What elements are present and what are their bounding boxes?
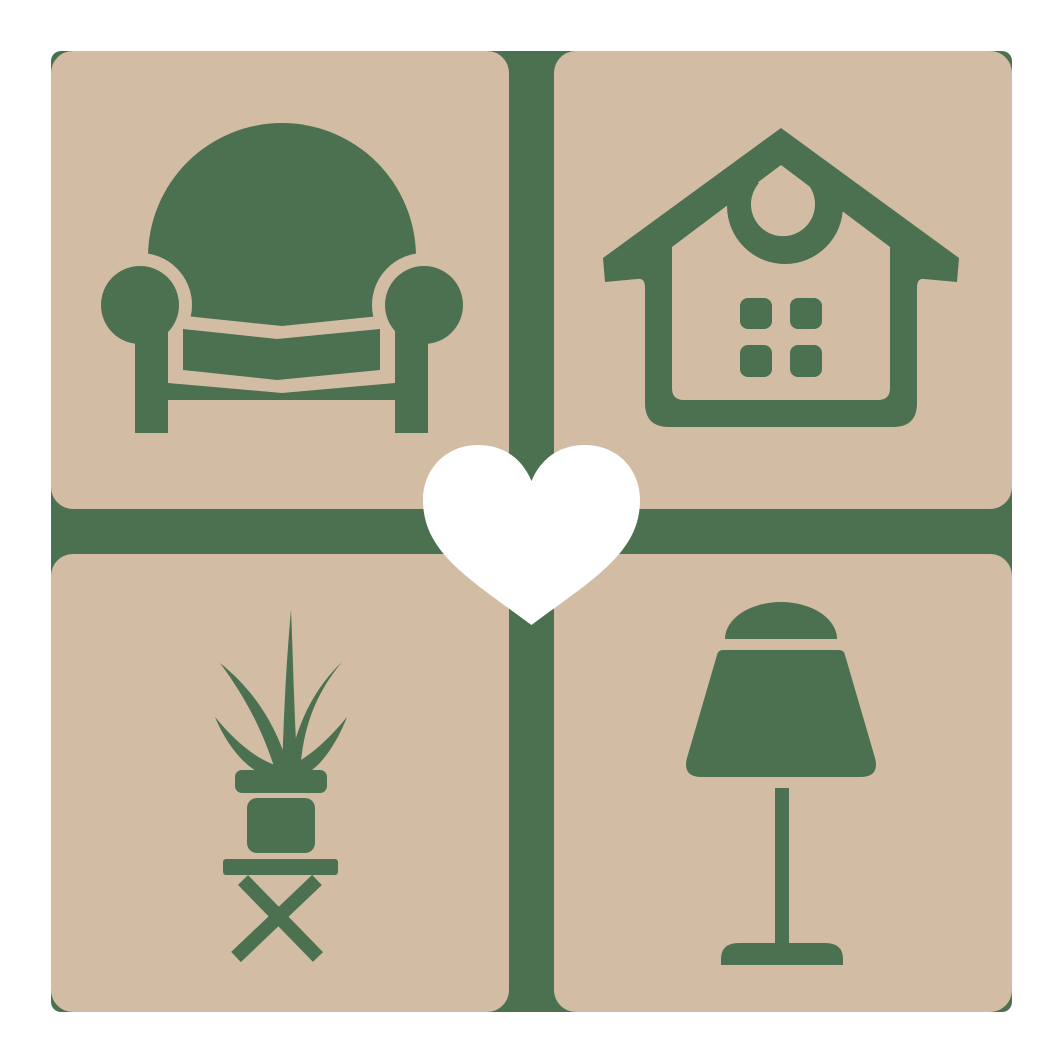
pot-body — [247, 798, 315, 853]
window-pane-top-left — [740, 298, 772, 329]
logo — [0, 0, 1063, 1063]
window-pane-bottom-left — [740, 345, 772, 377]
armchair-left-leg — [135, 305, 168, 433]
armchair-right-leg — [395, 305, 428, 433]
stool-top — [223, 859, 338, 875]
lamp-stem — [775, 788, 789, 948]
lamp-shade — [686, 650, 876, 777]
logo-canvas — [0, 0, 1063, 1063]
lamp-base — [721, 943, 843, 965]
window-pane-bottom-right — [790, 345, 822, 377]
pot-rim — [235, 770, 327, 793]
window-pane-top-right — [790, 298, 822, 329]
